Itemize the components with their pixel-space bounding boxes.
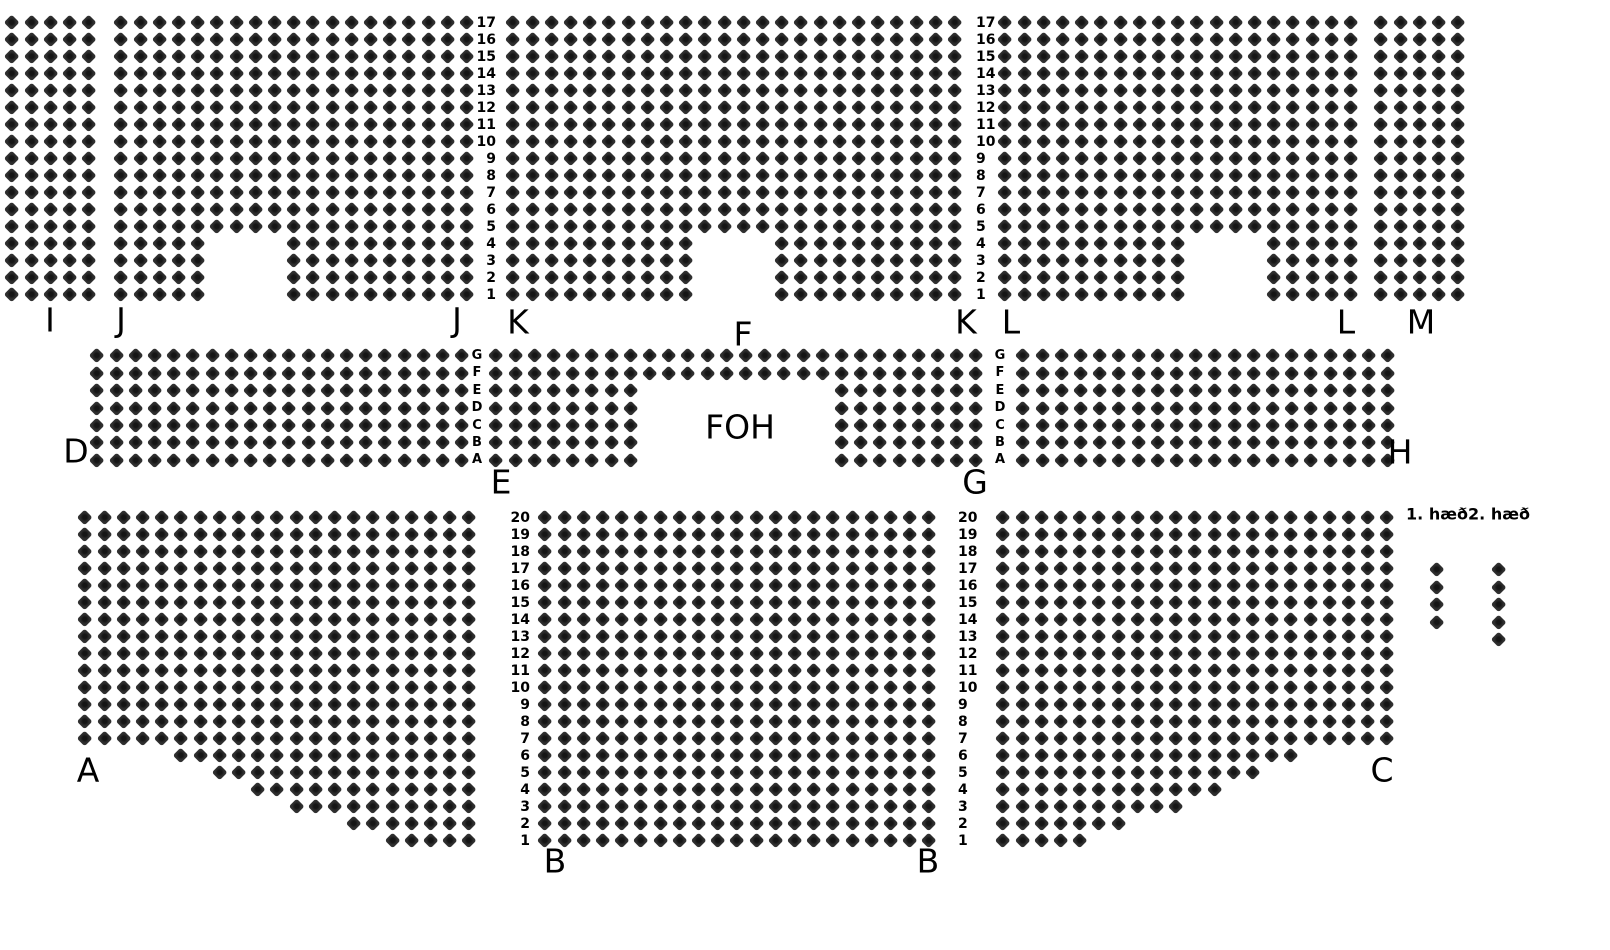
seat[interactable] <box>1072 680 1088 696</box>
seat[interactable] <box>1431 117 1447 133</box>
seat[interactable] <box>584 418 600 434</box>
seat[interactable] <box>1034 383 1050 399</box>
seat[interactable] <box>1055 100 1071 116</box>
seat[interactable] <box>1321 663 1337 679</box>
seat[interactable] <box>1189 168 1205 184</box>
seat[interactable] <box>1341 527 1357 543</box>
seat[interactable] <box>384 561 400 577</box>
seat[interactable] <box>1149 765 1165 781</box>
seat[interactable] <box>1093 270 1109 286</box>
seat[interactable] <box>343 236 359 252</box>
seat[interactable] <box>825 714 841 730</box>
seat[interactable] <box>902 527 918 543</box>
seat[interactable] <box>1129 527 1145 543</box>
seat[interactable] <box>844 561 860 577</box>
seat[interactable] <box>1373 117 1389 133</box>
seat[interactable] <box>423 799 439 815</box>
seat[interactable] <box>889 168 905 184</box>
seat[interactable] <box>250 561 266 577</box>
seat[interactable] <box>401 49 417 65</box>
seat[interactable] <box>403 527 419 543</box>
seat[interactable] <box>563 202 579 218</box>
seat[interactable] <box>365 578 381 594</box>
seat[interactable] <box>710 612 726 628</box>
seat[interactable] <box>659 117 675 133</box>
seat[interactable] <box>231 578 247 594</box>
seat[interactable] <box>62 32 78 48</box>
seat[interactable] <box>601 287 617 303</box>
seat[interactable] <box>584 400 600 416</box>
seat[interactable] <box>420 202 436 218</box>
seat[interactable] <box>851 219 867 235</box>
seat[interactable] <box>96 527 112 543</box>
seat[interactable] <box>1245 365 1261 381</box>
seat[interactable] <box>1341 418 1357 434</box>
seat[interactable] <box>883 612 899 628</box>
seat[interactable] <box>710 595 726 611</box>
seat[interactable] <box>62 83 78 99</box>
seat[interactable] <box>1264 663 1280 679</box>
seat[interactable] <box>377 452 393 468</box>
seat[interactable] <box>228 32 244 48</box>
seat[interactable] <box>1379 612 1395 628</box>
seat[interactable] <box>442 595 458 611</box>
seat[interactable] <box>81 32 97 48</box>
seat[interactable] <box>384 799 400 815</box>
seat[interactable] <box>307 561 323 577</box>
seat[interactable] <box>23 15 39 31</box>
seat[interactable] <box>305 219 321 235</box>
seat[interactable] <box>435 435 451 451</box>
seat[interactable] <box>738 365 754 381</box>
seat[interactable] <box>154 731 170 747</box>
seat[interactable] <box>1131 202 1147 218</box>
seat[interactable] <box>211 612 227 628</box>
seat[interactable] <box>716 100 732 116</box>
seat[interactable] <box>1206 527 1222 543</box>
seat[interactable] <box>1035 185 1051 201</box>
seat[interactable] <box>113 253 129 269</box>
seat[interactable] <box>697 15 713 31</box>
seat[interactable] <box>947 287 963 303</box>
seat[interactable] <box>556 544 572 560</box>
seat[interactable] <box>1093 236 1109 252</box>
seat[interactable] <box>1131 32 1147 48</box>
seat[interactable] <box>691 544 707 560</box>
seat[interactable] <box>620 66 636 82</box>
seat[interactable] <box>115 612 131 628</box>
seat[interactable] <box>1491 614 1507 630</box>
seat[interactable] <box>507 400 523 416</box>
seat[interactable] <box>1093 134 1109 150</box>
seat[interactable] <box>806 816 822 832</box>
seat[interactable] <box>930 348 946 364</box>
seat[interactable] <box>281 435 297 451</box>
seat[interactable] <box>1151 185 1167 201</box>
seat[interactable] <box>420 168 436 184</box>
seat[interactable] <box>1379 527 1395 543</box>
seat[interactable] <box>1034 348 1050 364</box>
seat[interactable] <box>902 697 918 713</box>
seat[interactable] <box>1187 629 1203 645</box>
seat[interactable] <box>671 561 687 577</box>
seat[interactable] <box>77 561 93 577</box>
seat[interactable] <box>995 527 1011 543</box>
seat[interactable] <box>755 32 771 48</box>
seat[interactable] <box>190 236 206 252</box>
seat[interactable] <box>231 561 247 577</box>
seat[interactable] <box>691 629 707 645</box>
seat[interactable] <box>132 168 148 184</box>
seat[interactable] <box>1149 435 1165 451</box>
seat[interactable] <box>231 646 247 662</box>
seat[interactable] <box>461 680 477 696</box>
seat[interactable] <box>1343 32 1359 48</box>
seat[interactable] <box>997 100 1013 116</box>
seat[interactable] <box>1072 748 1088 764</box>
seat[interactable] <box>575 731 591 747</box>
seat[interactable] <box>286 270 302 286</box>
seat[interactable] <box>995 629 1011 645</box>
seat[interactable] <box>1380 418 1396 434</box>
seat[interactable] <box>1380 365 1396 381</box>
seat[interactable] <box>1072 782 1088 798</box>
seat[interactable] <box>132 185 148 201</box>
seat[interactable] <box>575 527 591 543</box>
seat[interactable] <box>1245 714 1261 730</box>
seat[interactable] <box>77 612 93 628</box>
seat[interactable] <box>526 418 542 434</box>
seat[interactable] <box>403 646 419 662</box>
seat[interactable] <box>633 561 649 577</box>
seat[interactable] <box>601 83 617 99</box>
seat[interactable] <box>96 612 112 628</box>
seat[interactable] <box>288 527 304 543</box>
seat[interactable] <box>151 185 167 201</box>
seat[interactable] <box>870 66 886 82</box>
seat[interactable] <box>382 253 398 269</box>
seat[interactable] <box>1321 646 1337 662</box>
seat[interactable] <box>173 697 189 713</box>
seat[interactable] <box>1302 578 1318 594</box>
seat[interactable] <box>1283 544 1299 560</box>
seat[interactable] <box>1245 400 1261 416</box>
seat[interactable] <box>1053 748 1069 764</box>
seat[interactable] <box>384 510 400 526</box>
seat[interactable] <box>223 365 239 381</box>
seat[interactable] <box>151 100 167 116</box>
seat[interactable] <box>691 680 707 696</box>
seat[interactable] <box>211 544 227 560</box>
seat[interactable] <box>1431 236 1447 252</box>
seat[interactable] <box>1392 66 1408 82</box>
seat[interactable] <box>1014 697 1030 713</box>
seat[interactable] <box>1373 270 1389 286</box>
seat[interactable] <box>1053 452 1069 468</box>
seat[interactable] <box>1112 202 1128 218</box>
seat[interactable] <box>113 168 129 184</box>
seat[interactable] <box>23 151 39 167</box>
seat[interactable] <box>1016 219 1032 235</box>
seat[interactable] <box>1245 765 1261 781</box>
seat[interactable] <box>526 365 542 381</box>
seat[interactable] <box>902 714 918 730</box>
seat[interactable] <box>1208 185 1224 201</box>
seat[interactable] <box>1360 612 1376 628</box>
seat[interactable] <box>748 833 764 849</box>
seat[interactable] <box>767 833 783 849</box>
seat[interactable] <box>921 697 937 713</box>
seat[interactable] <box>461 595 477 611</box>
seat[interactable] <box>1411 66 1427 82</box>
seat[interactable] <box>135 612 151 628</box>
seat[interactable] <box>384 595 400 611</box>
seat[interactable] <box>1188 400 1204 416</box>
seat[interactable] <box>787 663 803 679</box>
seat[interactable] <box>575 612 591 628</box>
seat[interactable] <box>863 510 879 526</box>
seat[interactable] <box>365 731 381 747</box>
seat[interactable] <box>620 134 636 150</box>
seat[interactable] <box>595 646 611 662</box>
seat[interactable] <box>537 629 553 645</box>
seat[interactable] <box>1014 646 1030 662</box>
seat[interactable] <box>223 400 239 416</box>
seat[interactable] <box>603 400 619 416</box>
seat[interactable] <box>23 134 39 150</box>
seat[interactable] <box>423 578 439 594</box>
seat[interactable] <box>1285 49 1301 65</box>
seat[interactable] <box>1206 663 1222 679</box>
seat[interactable] <box>524 100 540 116</box>
seat[interactable] <box>921 578 937 594</box>
seat[interactable] <box>889 117 905 133</box>
seat[interactable] <box>1111 400 1127 416</box>
seat[interactable] <box>439 66 455 82</box>
seat[interactable] <box>363 151 379 167</box>
seat[interactable] <box>767 663 783 679</box>
seat[interactable] <box>190 15 206 31</box>
seat[interactable] <box>526 348 542 364</box>
seat[interactable] <box>231 765 247 781</box>
seat[interactable] <box>1303 435 1319 451</box>
seat[interactable] <box>793 253 809 269</box>
seat[interactable] <box>1304 151 1320 167</box>
seat[interactable] <box>699 348 715 364</box>
seat[interactable] <box>908 49 924 65</box>
seat[interactable] <box>883 765 899 781</box>
seat[interactable] <box>1073 400 1089 416</box>
seat[interactable] <box>1341 400 1357 416</box>
seat[interactable] <box>633 510 649 526</box>
seat[interactable] <box>1285 168 1301 184</box>
seat[interactable] <box>286 100 302 116</box>
seat[interactable] <box>774 185 790 201</box>
seat[interactable] <box>620 100 636 116</box>
seat[interactable] <box>396 400 412 416</box>
seat[interactable] <box>889 253 905 269</box>
seat[interactable] <box>678 83 694 99</box>
seat[interactable] <box>1187 527 1203 543</box>
seat[interactable] <box>729 510 745 526</box>
seat[interactable] <box>113 117 129 133</box>
seat[interactable] <box>269 612 285 628</box>
seat[interactable] <box>844 782 860 798</box>
seat[interactable] <box>927 270 943 286</box>
seat[interactable] <box>77 578 93 594</box>
seat[interactable] <box>185 452 201 468</box>
seat[interactable] <box>243 418 259 434</box>
seat[interactable] <box>1053 680 1069 696</box>
seat[interactable] <box>231 544 247 560</box>
seat[interactable] <box>1035 49 1051 65</box>
seat[interactable] <box>327 782 343 798</box>
seat[interactable] <box>135 646 151 662</box>
seat[interactable] <box>755 66 771 82</box>
seat[interactable] <box>671 816 687 832</box>
seat[interactable] <box>307 578 323 594</box>
seat[interactable] <box>825 816 841 832</box>
seat[interactable] <box>787 510 803 526</box>
seat[interactable] <box>671 544 687 560</box>
seat[interactable] <box>1170 49 1186 65</box>
seat[interactable] <box>243 400 259 416</box>
seat[interactable] <box>556 765 572 781</box>
seat[interactable] <box>575 782 591 798</box>
seat[interactable] <box>755 49 771 65</box>
seat[interactable] <box>1304 168 1320 184</box>
seat[interactable] <box>1321 544 1337 560</box>
seat[interactable] <box>844 799 860 815</box>
seat[interactable] <box>1302 561 1318 577</box>
seat[interactable] <box>1208 83 1224 99</box>
seat[interactable] <box>537 748 553 764</box>
seat[interactable] <box>190 83 206 99</box>
seat[interactable] <box>127 383 143 399</box>
seat[interactable] <box>622 348 638 364</box>
seat[interactable] <box>151 134 167 150</box>
seat[interactable] <box>582 270 598 286</box>
seat[interactable] <box>384 782 400 798</box>
seat[interactable] <box>1168 697 1184 713</box>
seat[interactable] <box>211 697 227 713</box>
seat[interactable] <box>343 287 359 303</box>
seat[interactable] <box>595 595 611 611</box>
seat[interactable] <box>190 66 206 82</box>
seat[interactable] <box>204 348 220 364</box>
seat[interactable] <box>633 527 649 543</box>
seat[interactable] <box>793 32 809 48</box>
seat[interactable] <box>995 765 1011 781</box>
seat[interactable] <box>442 782 458 798</box>
seat[interactable] <box>423 544 439 560</box>
seat[interactable] <box>1151 134 1167 150</box>
seat[interactable] <box>1431 168 1447 184</box>
seat[interactable] <box>1285 287 1301 303</box>
seat[interactable] <box>556 510 572 526</box>
seat[interactable] <box>1169 383 1185 399</box>
seat[interactable] <box>1450 202 1466 218</box>
seat[interactable] <box>812 15 828 31</box>
seat[interactable] <box>921 629 937 645</box>
seat[interactable] <box>927 253 943 269</box>
seat[interactable] <box>250 527 266 543</box>
seat[interactable] <box>211 578 227 594</box>
seat[interactable] <box>870 270 886 286</box>
seat[interactable] <box>1450 287 1466 303</box>
seat[interactable] <box>543 117 559 133</box>
seat[interactable] <box>42 83 58 99</box>
seat[interactable] <box>132 134 148 150</box>
seat[interactable] <box>735 202 751 218</box>
seat[interactable] <box>204 452 220 468</box>
seat[interactable] <box>1131 66 1147 82</box>
seat[interactable] <box>461 527 477 543</box>
seat[interactable] <box>582 151 598 167</box>
seat[interactable] <box>603 418 619 434</box>
seat[interactable] <box>1245 561 1261 577</box>
seat[interactable] <box>247 185 263 201</box>
seat[interactable] <box>403 510 419 526</box>
seat[interactable] <box>735 134 751 150</box>
seat[interactable] <box>1264 748 1280 764</box>
seat[interactable] <box>250 646 266 662</box>
seat[interactable] <box>108 400 124 416</box>
seat[interactable] <box>1411 49 1427 65</box>
seat[interactable] <box>1343 134 1359 150</box>
seat[interactable] <box>365 799 381 815</box>
seat[interactable] <box>113 134 129 150</box>
seat[interactable] <box>1450 185 1466 201</box>
seat[interactable] <box>1373 100 1389 116</box>
seat[interactable] <box>1072 731 1088 747</box>
seat[interactable] <box>1074 32 1090 48</box>
seat[interactable] <box>1016 151 1032 167</box>
seat[interactable] <box>1151 287 1167 303</box>
seat[interactable] <box>633 578 649 594</box>
seat[interactable] <box>147 452 163 468</box>
seat[interactable] <box>1129 799 1145 815</box>
seat[interactable] <box>190 151 206 167</box>
seat[interactable] <box>1208 168 1224 184</box>
seat[interactable] <box>659 219 675 235</box>
seat[interactable] <box>288 748 304 764</box>
seat[interactable] <box>42 117 58 133</box>
seat[interactable] <box>327 612 343 628</box>
seat[interactable] <box>584 452 600 468</box>
seat[interactable] <box>192 510 208 526</box>
seat[interactable] <box>767 629 783 645</box>
seat[interactable] <box>697 100 713 116</box>
seat[interactable] <box>1169 452 1185 468</box>
seat[interactable] <box>288 663 304 679</box>
seat[interactable] <box>209 49 225 65</box>
seat[interactable] <box>358 383 374 399</box>
seat[interactable] <box>1323 66 1339 82</box>
seat[interactable] <box>319 452 335 468</box>
seat[interactable] <box>968 435 984 451</box>
seat[interactable] <box>228 168 244 184</box>
seat[interactable] <box>537 697 553 713</box>
seat[interactable] <box>1168 578 1184 594</box>
seat[interactable] <box>363 202 379 218</box>
seat[interactable] <box>1431 185 1447 201</box>
seat[interactable] <box>1073 383 1089 399</box>
seat[interactable] <box>324 287 340 303</box>
seat[interactable] <box>247 49 263 65</box>
seat[interactable] <box>806 748 822 764</box>
seat[interactable] <box>1112 32 1128 48</box>
